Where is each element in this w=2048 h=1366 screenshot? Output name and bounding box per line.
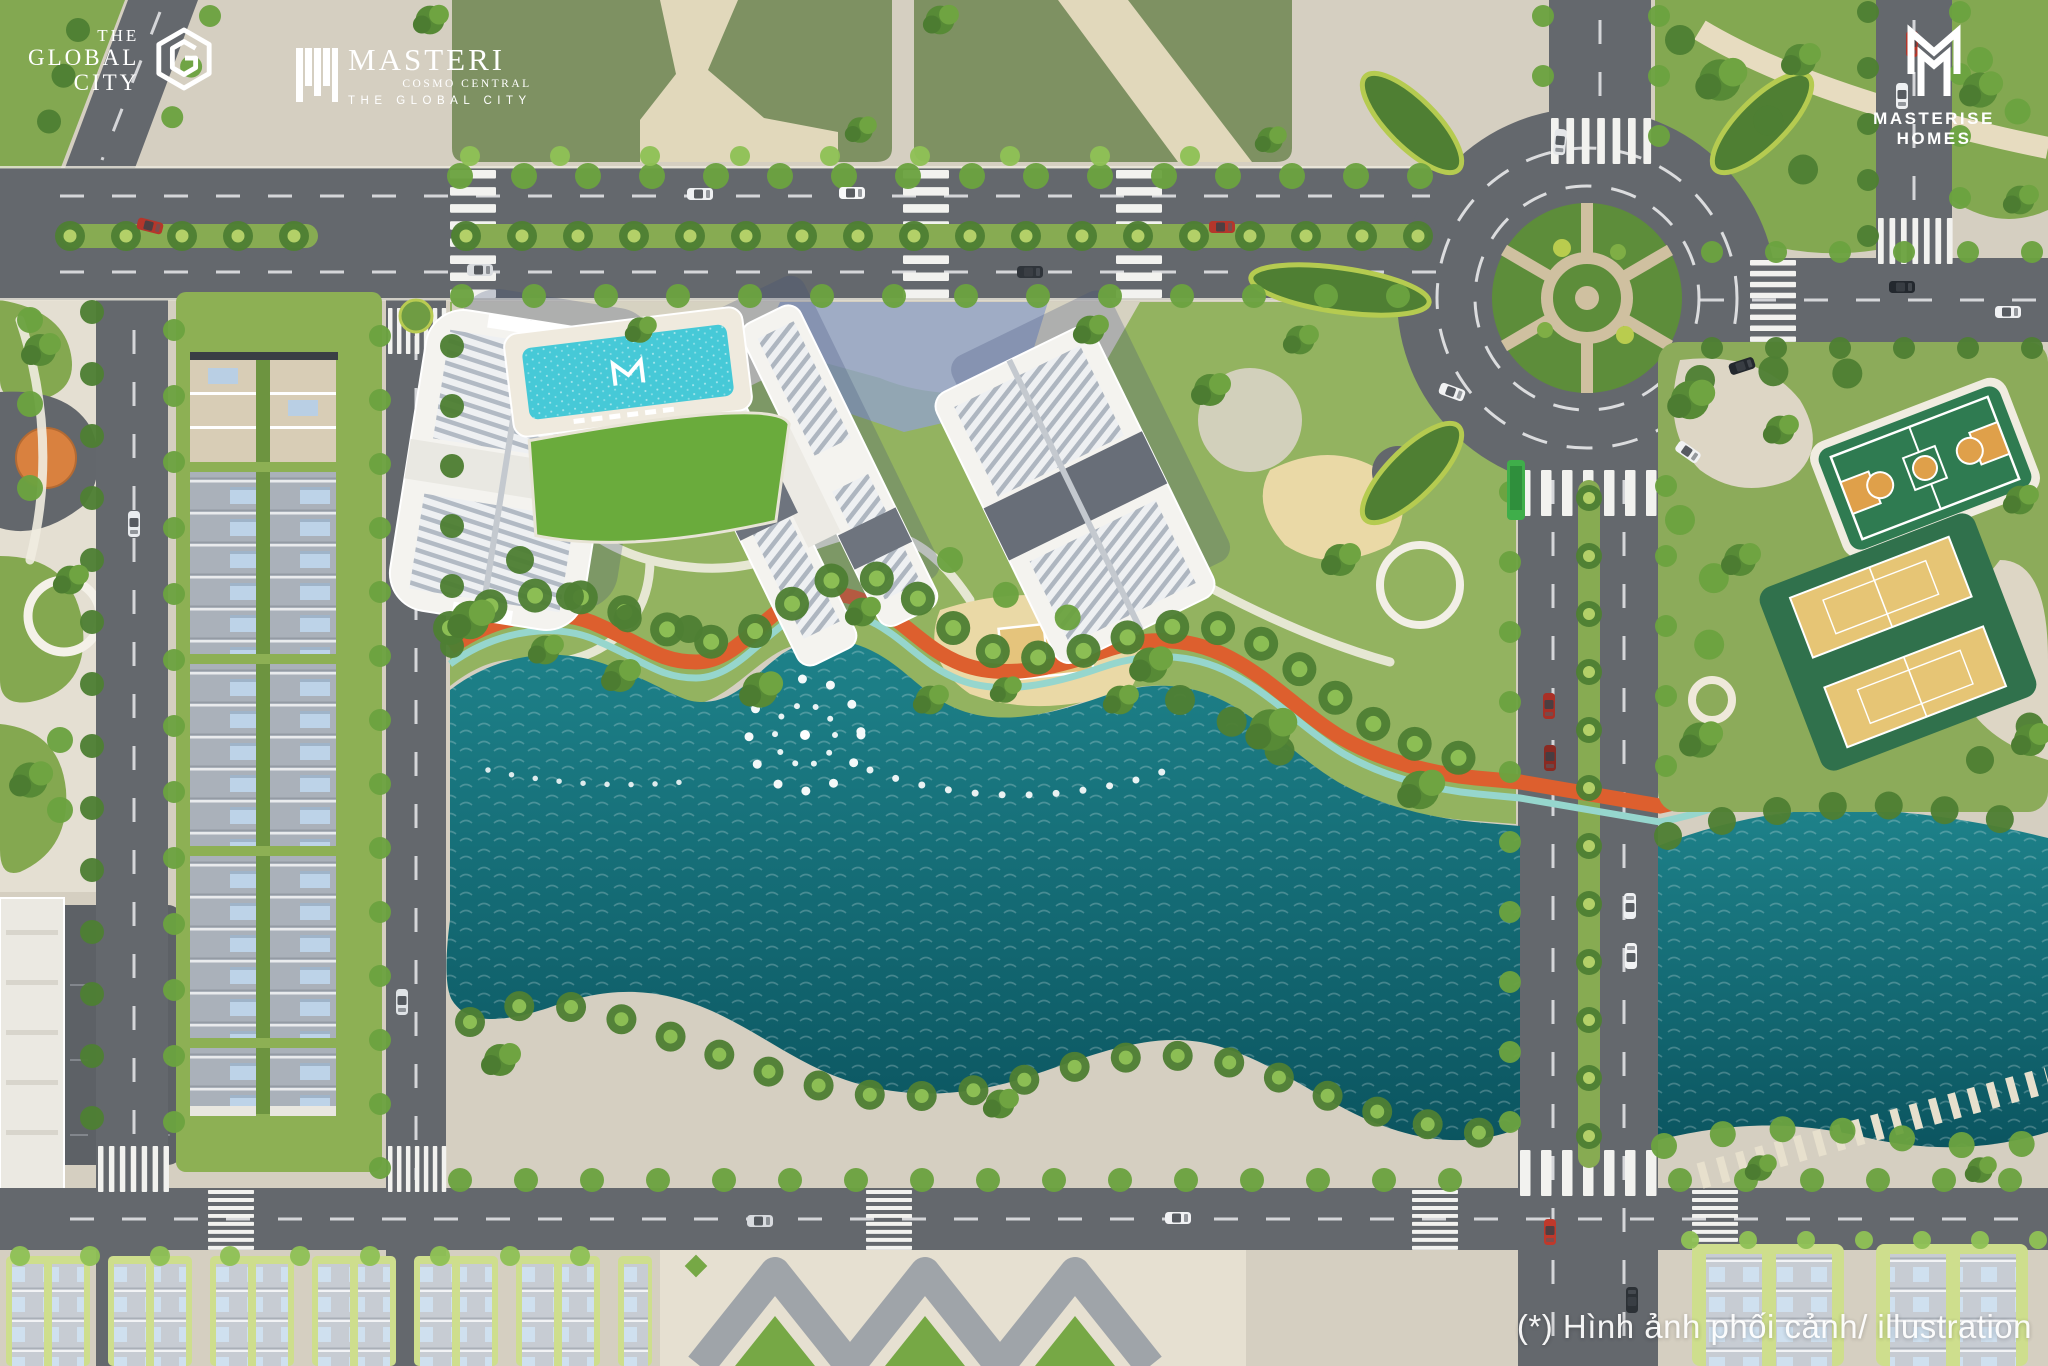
hexagon-g-icon — [153, 26, 215, 97]
the-global-city-wordmark: THE GLOBAL CITY — [28, 27, 139, 95]
masteri-tagline: THE GLOBAL CITY — [348, 95, 532, 107]
rowhouse-block — [312, 1256, 396, 1366]
central-apartment-towers — [384, 270, 1246, 670]
shuttle-bus — [1507, 460, 1525, 520]
aerial-masterplan-render: THE GLOBAL CITY MASTERI COSMO CENTRAL TH… — [0, 0, 2048, 1366]
villa-block — [1692, 1244, 1844, 1366]
rowhouse-block — [108, 1256, 192, 1366]
rowhouse-block — [6, 1256, 90, 1366]
masteri-m-icon — [296, 44, 338, 113]
masterise-homes-wordmark: MASTERISE HOMES — [1836, 109, 2032, 149]
mini-roundabout — [400, 300, 432, 332]
logo-line: GLOBAL — [28, 46, 139, 71]
masterise-m-monogram-icon — [1906, 85, 1962, 102]
townhouse-row-block — [190, 856, 336, 1038]
rowhouse-block — [210, 1256, 294, 1366]
townhouse-row-block — [190, 1048, 336, 1116]
masteri-wordmark: MASTERI COSMO CENTRAL THE GLOBAL CITY — [348, 44, 532, 107]
flat-roof-building — [0, 898, 64, 1198]
logo-line: THE — [28, 27, 139, 45]
bottom-plaza — [660, 1250, 1246, 1366]
villa-block — [1876, 1244, 2028, 1366]
illustration-disclaimer: (*) Hình ảnh phối cảnh/ illustration — [1517, 1308, 2032, 1346]
logo-line: CITY — [28, 71, 139, 96]
townhouse-district — [176, 292, 382, 1172]
townhouse-row-block — [190, 472, 336, 654]
masteri-subtitle: COSMO CENTRAL — [348, 78, 532, 90]
townhouse-row-block — [190, 664, 336, 846]
rowhouse-block — [618, 1256, 652, 1366]
rowhouse-block — [414, 1256, 498, 1366]
masteri-cosmo-central-logo: MASTERI COSMO CENTRAL THE GLOBAL CITY — [296, 44, 532, 113]
the-global-city-logo: THE GLOBAL CITY — [28, 26, 215, 97]
masteri-name: MASTERI — [348, 44, 532, 75]
masterise-homes-logo: MASTERISE HOMES — [1836, 24, 2032, 149]
rowhouse-block — [516, 1256, 600, 1366]
masterplan-scene — [0, 0, 2048, 1366]
